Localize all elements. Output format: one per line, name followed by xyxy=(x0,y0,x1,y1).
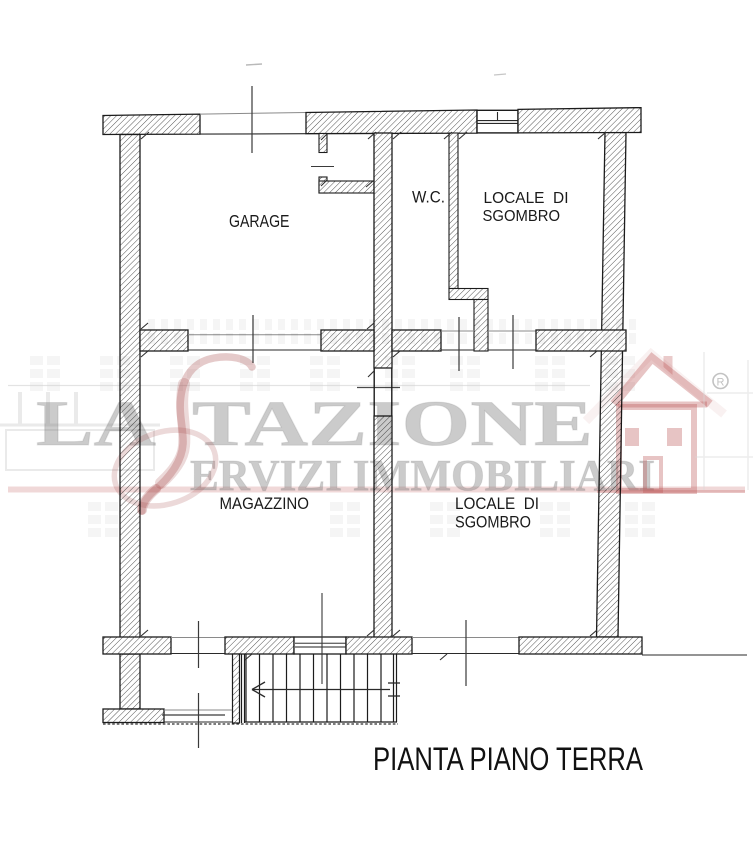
svg-text:GARAGE: GARAGE xyxy=(229,211,290,231)
svg-text:TAZIONE: TAZIONE xyxy=(192,388,593,460)
svg-text:R: R xyxy=(717,377,725,389)
svg-text:PIANTA PIANO TERRA: PIANTA PIANO TERRA xyxy=(373,741,644,777)
svg-text:LOCALE DI: LOCALE DI xyxy=(484,190,569,207)
svg-text:SGOMBRO: SGOMBRO xyxy=(483,208,561,225)
svg-text:SGOMBRO: SGOMBRO xyxy=(455,514,531,532)
svg-text:ERVIZI IMMOBILIARI: ERVIZI IMMOBILIARI xyxy=(190,451,655,500)
svg-text:LA: LA xyxy=(36,388,156,460)
svg-text:W.C.: W.C. xyxy=(412,189,445,207)
